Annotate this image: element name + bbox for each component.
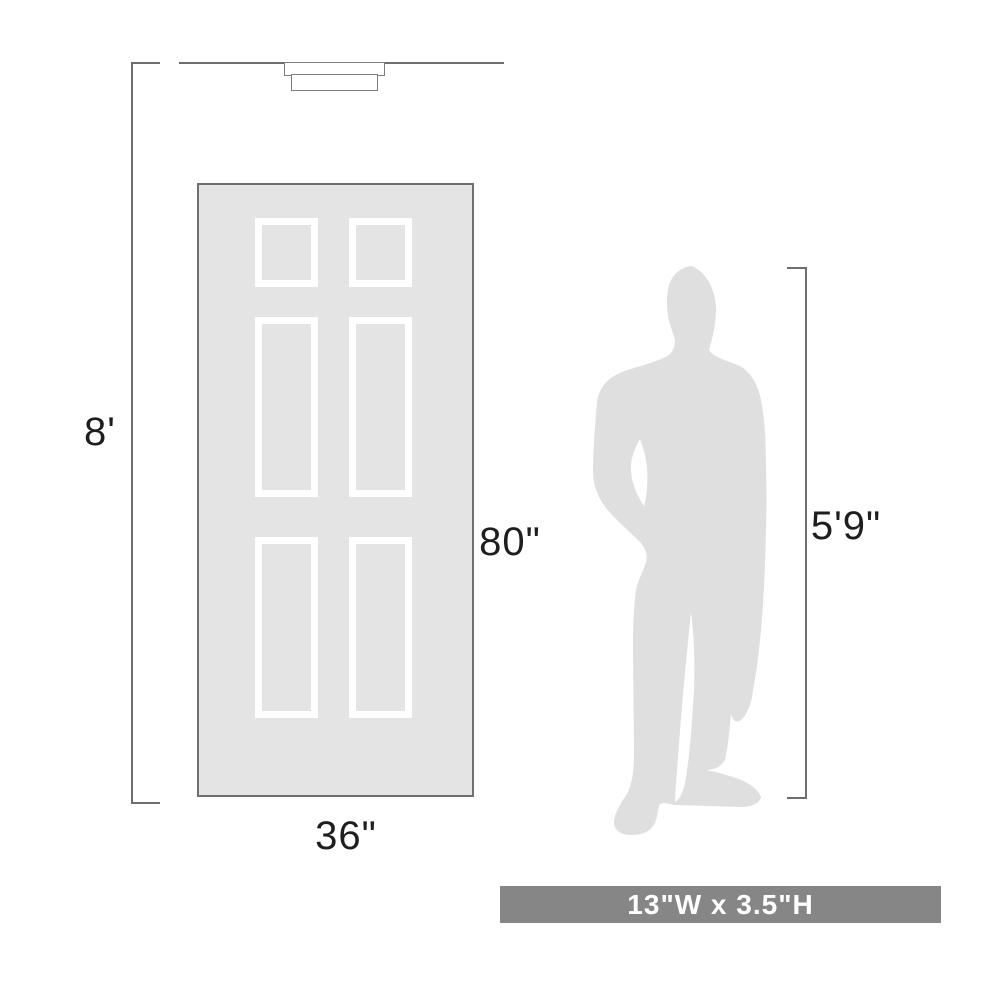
door-panel xyxy=(349,218,412,287)
door-width-label: 36" xyxy=(314,814,378,858)
door-height-label: 80" xyxy=(478,520,542,564)
door-panel xyxy=(255,537,318,718)
ceiling-height-label: 8' xyxy=(70,410,130,454)
door-panel xyxy=(349,537,412,718)
product-scale-diagram: 8' 80" 36" 5'9" 13"W x 3.5"H xyxy=(0,0,1000,1000)
door-panel xyxy=(255,218,318,287)
door-panel xyxy=(255,317,318,497)
flush-mount-fixture-shade-icon xyxy=(291,74,378,91)
fixture-size-label: 13"W x 3.5"H xyxy=(627,889,813,921)
ceiling-height-bracket-top-tick xyxy=(131,62,160,64)
person-height-bracket-top-tick xyxy=(787,267,807,269)
ceiling-height-bracket-line xyxy=(131,62,133,804)
person-height-bracket-line xyxy=(805,267,807,799)
person-silhouette-icon xyxy=(590,266,770,836)
fixture-size-bar: 13"W x 3.5"H xyxy=(500,886,941,923)
ceiling-height-bracket-bottom-tick xyxy=(131,802,160,804)
door-panel xyxy=(349,317,412,497)
door-illustration xyxy=(197,183,474,797)
person-height-label: 5'9" xyxy=(810,504,882,548)
person-height-bracket-bottom-tick xyxy=(787,797,807,799)
